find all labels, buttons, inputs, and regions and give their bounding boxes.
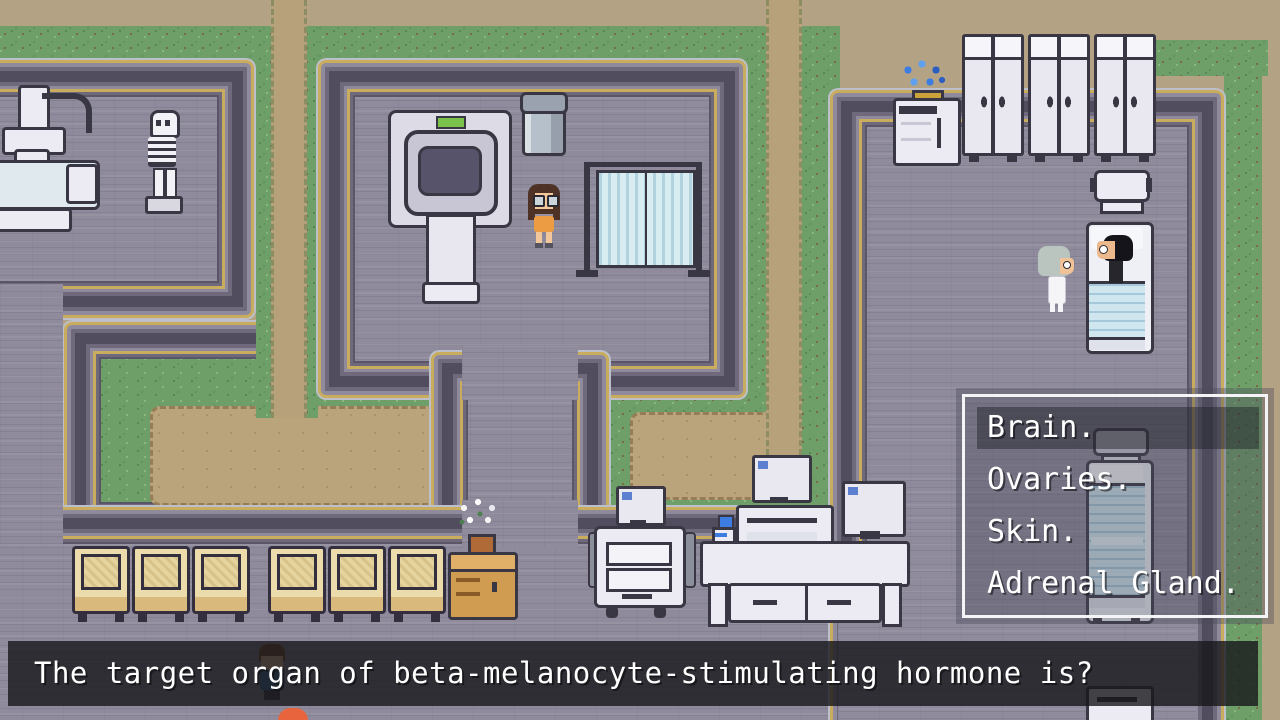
skeleton-model xyxy=(143,110,183,214)
floor-opening-left xyxy=(0,284,63,546)
doctor-character xyxy=(1038,246,1078,312)
waiting-chair-1 xyxy=(72,546,130,614)
privacy-screen xyxy=(584,150,702,288)
mri-scanner xyxy=(388,110,512,302)
waiting-chair-4 xyxy=(268,546,326,614)
desk-drawers xyxy=(728,583,882,623)
wood-cabinet xyxy=(448,552,518,620)
game-viewport: Brain. Ovaries. Skin. Adrenal Gland. The… xyxy=(0,0,1280,720)
operating-table xyxy=(0,160,110,236)
white-flower-plant xyxy=(452,498,508,558)
medical-cart xyxy=(592,486,692,622)
garden-path-2 xyxy=(766,0,802,482)
locker-1 xyxy=(962,34,1024,156)
choice-menu-border: Brain. Ovaries. Skin. Adrenal Gland. xyxy=(962,394,1268,618)
computer-monitor-2 xyxy=(842,481,906,537)
dialogue-box[interactable]: The target organ of beta-melanocyte-stim… xyxy=(8,641,1258,706)
dialogue-text: The target organ of beta-melanocyte-stim… xyxy=(34,656,1094,690)
desk-workstation xyxy=(700,455,912,627)
locker-2 xyxy=(1028,34,1090,156)
computer-monitor-1 xyxy=(752,455,812,503)
choice-option[interactable]: Skin. xyxy=(977,511,1259,553)
choice-option[interactable]: Brain. xyxy=(977,407,1259,449)
garden-path-1 xyxy=(271,0,307,418)
supply-cabinet xyxy=(893,98,961,166)
patient-bed xyxy=(1086,222,1154,354)
side-table-1 xyxy=(1090,170,1152,218)
floor-opening-ext-top xyxy=(462,345,578,400)
nurse-character xyxy=(526,184,562,248)
dirt-courtyard-1 xyxy=(150,406,456,506)
waiting-chair-5 xyxy=(328,546,386,614)
waiting-chair-2 xyxy=(132,546,190,614)
surgical-light xyxy=(2,85,112,165)
waiting-chair-6 xyxy=(388,546,446,614)
choice-option[interactable]: Ovaries. xyxy=(977,459,1259,501)
waiting-chair-3 xyxy=(192,546,250,614)
office-chair-blue-1 xyxy=(1030,162,1086,242)
locker-3 xyxy=(1094,34,1156,156)
trash-can xyxy=(520,92,568,158)
desk-top xyxy=(700,541,910,587)
choice-option[interactable]: Adrenal Gland. xyxy=(977,563,1259,605)
choice-menu: Brain. Ovaries. Skin. Adrenal Gland. xyxy=(956,388,1274,624)
